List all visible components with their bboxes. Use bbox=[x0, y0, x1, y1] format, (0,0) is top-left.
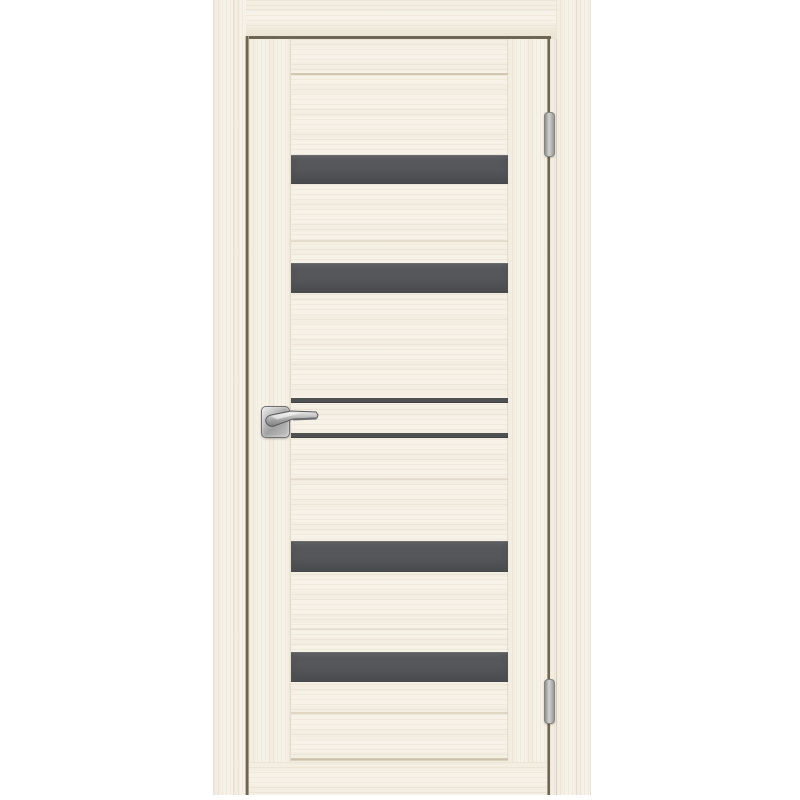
top-rail-groove bbox=[291, 73, 508, 76]
panel-groove-4 bbox=[291, 712, 508, 715]
panel-groove-1 bbox=[291, 240, 508, 243]
photo-canvas bbox=[0, 0, 800, 800]
glass-insert-2 bbox=[291, 263, 508, 293]
frame-casing-left bbox=[213, 0, 247, 795]
casing-left-groove bbox=[233, 0, 235, 795]
glass-insert-1 bbox=[291, 155, 508, 184]
glass-insert-4 bbox=[291, 652, 508, 682]
door-handle bbox=[257, 402, 323, 442]
handle-lever bbox=[257, 402, 323, 442]
leaf-bottom-rail bbox=[249, 762, 547, 795]
molding-strip-1 bbox=[291, 398, 508, 403]
leaf-stile-right bbox=[508, 39, 547, 795]
hinge-bottom bbox=[544, 679, 555, 724]
casing-right-groove bbox=[576, 0, 578, 795]
panel-groove-2 bbox=[291, 478, 508, 481]
panel-groove-3 bbox=[291, 628, 508, 631]
bottom-rail-groove bbox=[291, 758, 508, 762]
frame-casing-right bbox=[556, 0, 591, 795]
casing-head-groove bbox=[246, 9, 556, 11]
frame-casing-head bbox=[246, 0, 556, 29]
hinge-top bbox=[544, 112, 555, 157]
molding-strip-2 bbox=[291, 433, 508, 438]
glass-insert-3 bbox=[291, 541, 508, 572]
